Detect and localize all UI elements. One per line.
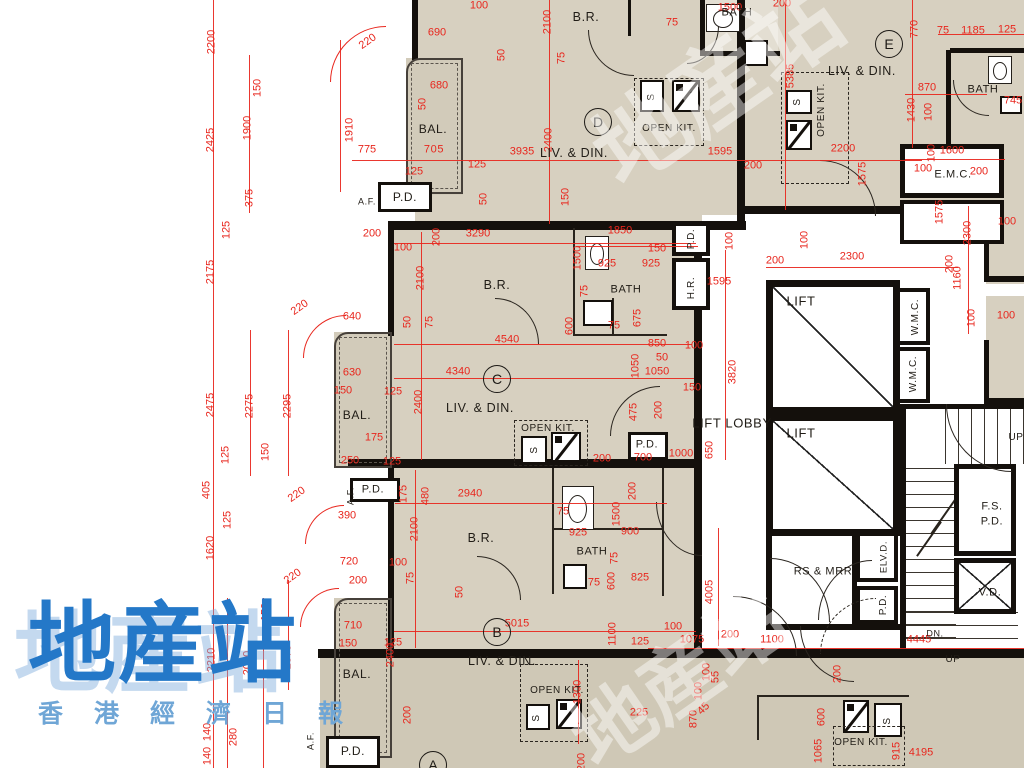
dim-label: 125 bbox=[468, 160, 486, 171]
unit-letter-badge: C bbox=[483, 365, 511, 393]
room-label: W.M.C. bbox=[909, 356, 919, 392]
dimension-line bbox=[395, 503, 667, 504]
unit-letter-badge: D bbox=[584, 108, 612, 136]
room-label: H.R. bbox=[687, 277, 697, 299]
dim-label: 5385 bbox=[786, 64, 797, 88]
unit-letter-badge: E bbox=[875, 30, 903, 58]
dim-label: 690 bbox=[428, 28, 446, 39]
dim-label: 375 bbox=[245, 189, 256, 207]
dim-label: 75 bbox=[608, 321, 620, 332]
dim-label: 2475 bbox=[206, 393, 217, 417]
room-label: B.R. bbox=[468, 532, 495, 545]
dim-label: 200 bbox=[363, 229, 381, 240]
room-area bbox=[392, 468, 698, 658]
dim-label: 75 bbox=[580, 285, 591, 297]
dim-label: 100 bbox=[694, 682, 705, 700]
wall-segment bbox=[984, 276, 1024, 282]
dim-label: 75 bbox=[610, 552, 621, 564]
dim-label: 100 bbox=[914, 164, 932, 175]
dim-label: 75 bbox=[425, 316, 436, 328]
dim-label: 1000 bbox=[669, 449, 693, 460]
dim-label: 50 bbox=[497, 49, 508, 61]
dim-label: 1065 bbox=[814, 739, 825, 763]
room-label: S bbox=[530, 446, 540, 453]
dim-label: 100 bbox=[394, 243, 412, 254]
room-label: LIFT LOBBY bbox=[692, 417, 771, 430]
dim-label: 2200 bbox=[207, 30, 218, 54]
room-label: E.M.C. bbox=[934, 170, 971, 181]
dim-label: 925 bbox=[642, 259, 660, 270]
dim-label: 50 bbox=[479, 193, 490, 205]
dim-label: 1850 bbox=[608, 226, 632, 237]
room-label: A.F. bbox=[347, 487, 356, 505]
dim-label: 150 bbox=[339, 639, 357, 650]
partition-line bbox=[757, 695, 909, 697]
dim-label: 125 bbox=[384, 387, 402, 398]
wall-segment bbox=[984, 340, 989, 400]
dimension-line bbox=[785, 0, 786, 210]
dim-label: 825 bbox=[631, 573, 649, 584]
room-label: LIFT bbox=[786, 427, 815, 440]
service-shaft-box bbox=[900, 200, 1004, 244]
dim-label: 3290 bbox=[466, 229, 490, 240]
dim-label: 150 bbox=[561, 188, 572, 206]
room-label: S bbox=[793, 98, 803, 105]
dim-label: 1100 bbox=[760, 635, 784, 646]
dim-label: 200 bbox=[654, 401, 665, 419]
wall-segment bbox=[694, 468, 702, 654]
dim-label: 870 bbox=[918, 83, 936, 94]
wall-segment bbox=[950, 48, 1024, 53]
dim-label: 1595 bbox=[708, 147, 732, 158]
dim-label: 125 bbox=[998, 25, 1016, 36]
dim-label: 2295 bbox=[283, 394, 294, 418]
room-label: P.D. bbox=[393, 191, 417, 203]
dim-label: 1910 bbox=[345, 118, 356, 142]
dim-label: 680 bbox=[430, 81, 448, 92]
dim-label: 720 bbox=[340, 557, 358, 568]
dimension-line bbox=[352, 160, 922, 161]
dim-label: 75 bbox=[557, 52, 568, 64]
dimension-line bbox=[648, 648, 1024, 649]
dim-label: 1185 bbox=[961, 26, 985, 37]
dim-label: 125 bbox=[221, 446, 232, 464]
room-label: B.R. bbox=[573, 11, 600, 24]
watermark-logo: 地産站 bbox=[28, 600, 298, 688]
dim-label: 75 bbox=[557, 507, 569, 518]
dimension-line bbox=[718, 528, 719, 646]
dim-label: 150 bbox=[683, 383, 701, 394]
dim-label: 1600 bbox=[940, 146, 964, 157]
dim-label: 200 bbox=[773, 0, 791, 10]
dim-label: 100 bbox=[924, 103, 935, 121]
dim-label: 650 bbox=[705, 441, 716, 459]
dim-label: 200 bbox=[577, 753, 588, 768]
watermark-subtitle: 香港經濟日報 bbox=[38, 702, 374, 727]
dim-label: 475 bbox=[629, 403, 640, 421]
dim-label: 125 bbox=[222, 221, 233, 239]
dim-label: 50 bbox=[403, 316, 414, 328]
dim-label: 200 bbox=[970, 167, 988, 178]
dim-label: 125 bbox=[405, 167, 423, 178]
wall-segment bbox=[412, 0, 418, 60]
service-shaft-box bbox=[744, 40, 768, 66]
dim-label: 2100 bbox=[543, 10, 554, 34]
dim-label: 4195 bbox=[909, 748, 933, 759]
dim-label: 125 bbox=[631, 637, 649, 648]
dim-label: 775 bbox=[358, 145, 376, 156]
dim-label: 150 bbox=[648, 244, 666, 255]
dimension-line bbox=[394, 378, 694, 379]
dim-label: 600 bbox=[565, 317, 576, 335]
dim-label: 1050 bbox=[645, 367, 669, 378]
dim-label: 2400 bbox=[414, 390, 425, 414]
room-label: LIV. & DIN. bbox=[446, 402, 514, 415]
dim-label: 600 bbox=[817, 708, 828, 726]
dim-label: 700 bbox=[634, 453, 652, 464]
dim-label: 1500 bbox=[612, 502, 623, 526]
dim-label: 175 bbox=[399, 485, 410, 503]
floor-plan: 2200150242519003751252175247522752295150… bbox=[0, 0, 1024, 768]
dim-label: 915 bbox=[892, 742, 903, 760]
dim-label: 50 bbox=[656, 353, 668, 364]
dim-label: 4340 bbox=[446, 367, 470, 378]
dim-label: 2100 bbox=[416, 266, 427, 290]
dimension-arc bbox=[303, 315, 346, 358]
dim-label: 390 bbox=[338, 511, 356, 522]
dim-label: 200 bbox=[721, 630, 739, 641]
partition-line bbox=[573, 334, 667, 336]
dim-label: 220 bbox=[282, 567, 303, 587]
dimension-line bbox=[576, 246, 698, 247]
dim-label: 675 bbox=[633, 309, 644, 327]
dim-label: 55 bbox=[711, 671, 722, 683]
dim-label: 100 bbox=[685, 341, 703, 352]
dim-label: 225 bbox=[630, 708, 648, 719]
dim-label: 125 bbox=[223, 511, 234, 529]
dim-label: 600 bbox=[607, 572, 618, 590]
wall-segment bbox=[700, 51, 780, 56]
dim-label: 3820 bbox=[728, 360, 739, 384]
wall-segment bbox=[318, 649, 1024, 658]
dim-label: 75 bbox=[666, 18, 678, 29]
dimension-arc bbox=[300, 588, 339, 627]
dim-label: 100 bbox=[725, 232, 736, 250]
dim-label: 1575 bbox=[935, 200, 946, 224]
dim-label: 200 bbox=[628, 482, 639, 500]
room-label: ELV.D. bbox=[879, 541, 889, 573]
dim-label: 200 bbox=[432, 228, 443, 246]
dim-label: 2200 bbox=[831, 144, 855, 155]
wall-segment bbox=[900, 404, 906, 656]
dim-label: 900 bbox=[621, 527, 639, 538]
dim-label: 50 bbox=[418, 98, 429, 110]
dim-label: 100 bbox=[927, 144, 938, 162]
dim-label: 200 bbox=[593, 454, 611, 465]
room-label: OPEN KIT. bbox=[530, 686, 584, 696]
dim-label: 925 bbox=[569, 528, 587, 539]
dim-label: 2940 bbox=[458, 489, 482, 500]
dim-label: 1500 bbox=[573, 246, 584, 270]
service-shaft-box bbox=[563, 564, 587, 589]
room-label: OPEN KIT. bbox=[642, 124, 696, 134]
room-label: S bbox=[532, 714, 542, 721]
dim-label: 2100 bbox=[410, 517, 421, 541]
room-label: UP bbox=[945, 655, 960, 665]
dim-label: 150 bbox=[253, 79, 264, 97]
dim-label: 100 bbox=[664, 622, 682, 633]
partition-line bbox=[757, 695, 759, 740]
dim-label: 710 bbox=[344, 621, 362, 632]
dim-label: 200 bbox=[744, 161, 762, 172]
dim-label: 140 bbox=[203, 747, 214, 765]
dim-label: 770 bbox=[910, 20, 921, 38]
room-label: BATH bbox=[968, 85, 999, 96]
dim-label: 925 bbox=[598, 259, 616, 270]
room-label: OPEN KIT. bbox=[521, 424, 575, 434]
dim-label: 1160 bbox=[953, 266, 964, 290]
dim-label: 1620 bbox=[206, 536, 217, 560]
dim-label: 2300 bbox=[963, 221, 974, 245]
room-label: A.F. bbox=[307, 732, 316, 750]
room-label: P.D. bbox=[636, 440, 658, 451]
dim-label: 200 bbox=[349, 576, 367, 587]
dim-label: 2300 bbox=[840, 252, 864, 263]
dim-label: 1430 bbox=[907, 98, 918, 122]
dim-label: 640 bbox=[343, 312, 361, 323]
room-label: S bbox=[883, 717, 893, 724]
toilet-icon bbox=[988, 56, 1012, 84]
dim-label: 1075 bbox=[680, 635, 704, 646]
dim-label: 630 bbox=[343, 368, 361, 379]
dim-label: 870 bbox=[689, 710, 700, 728]
dim-label: 1100 bbox=[608, 622, 619, 646]
dim-label: 220 bbox=[286, 485, 307, 505]
dim-label: 150 bbox=[334, 386, 352, 397]
room-label: OPEN KIT. bbox=[834, 738, 888, 748]
room-label: P.D. bbox=[362, 485, 384, 496]
dim-label: 200 bbox=[833, 665, 844, 683]
wall-segment bbox=[946, 50, 951, 148]
dim-label: 200 bbox=[403, 706, 414, 724]
dim-label: 220 bbox=[289, 298, 310, 318]
room-label: DN. bbox=[926, 630, 943, 639]
dim-label: 1050 bbox=[631, 354, 642, 378]
room-label: 705 bbox=[424, 145, 444, 156]
room-label: BATH bbox=[722, 8, 753, 19]
dim-label: 75 bbox=[588, 578, 600, 589]
dim-label: 100 bbox=[800, 231, 811, 249]
room-label: LIV. & DIN. bbox=[540, 147, 608, 160]
dim-label: 100 bbox=[998, 217, 1016, 228]
dim-label: 100 bbox=[470, 1, 488, 12]
dim-label: 1575 bbox=[858, 162, 869, 186]
dim-label: 2175 bbox=[206, 260, 217, 284]
dim-label: 2425 bbox=[206, 128, 217, 152]
partition-line bbox=[552, 468, 554, 594]
dim-label: 75 bbox=[406, 572, 417, 584]
room-label: P.D. bbox=[687, 229, 697, 250]
dim-label: 745 bbox=[1004, 96, 1022, 107]
dimension-line bbox=[394, 631, 696, 632]
room-label: V.D. bbox=[979, 588, 1002, 599]
room-label: P.D. bbox=[341, 745, 365, 757]
dim-label: 150 bbox=[261, 443, 272, 461]
open-kitchen-zone bbox=[634, 78, 704, 146]
room-label: W.M.C. bbox=[911, 299, 921, 335]
room-label: RS & MRR bbox=[794, 567, 853, 578]
room-label: P.D. bbox=[981, 517, 1003, 528]
room-label: BATH bbox=[577, 547, 608, 558]
dim-label: 100 bbox=[967, 309, 978, 327]
room-label: BATH bbox=[611, 285, 642, 296]
dim-label: 3935 bbox=[510, 147, 534, 158]
dimension-line bbox=[905, 159, 1005, 160]
dimension-line bbox=[415, 470, 416, 648]
room-label: S bbox=[647, 93, 657, 100]
room-label: BAL. bbox=[343, 668, 371, 680]
dim-label: 100 bbox=[389, 558, 407, 569]
dim-label: 2275 bbox=[245, 394, 256, 418]
room-label: LIFT bbox=[786, 295, 815, 308]
dim-label: 125 bbox=[383, 457, 401, 468]
room-label: LIV. & DIN. bbox=[828, 65, 896, 78]
dim-label: 4540 bbox=[495, 335, 519, 346]
dim-label: 175 bbox=[365, 433, 383, 444]
room-label: F.S. bbox=[981, 502, 1002, 513]
dim-label: 50 bbox=[455, 586, 466, 598]
unit-letter-badge: B bbox=[483, 618, 511, 646]
room-label: OPEN KIT. bbox=[817, 83, 827, 137]
dim-label: 405 bbox=[202, 481, 213, 499]
room-label: UP bbox=[1008, 433, 1023, 443]
dim-label: 1595 bbox=[707, 277, 731, 288]
room-label: BAL. bbox=[419, 123, 447, 135]
room-label: BAL. bbox=[343, 409, 371, 421]
dim-label: 2400 bbox=[386, 643, 397, 667]
room-label: P.D. bbox=[879, 595, 889, 616]
dim-label: 280 bbox=[229, 728, 240, 746]
dim-label: 4005 bbox=[705, 580, 716, 604]
room-label: A.F. bbox=[358, 198, 376, 207]
dim-label: 75 bbox=[937, 26, 949, 37]
room-label: LIV. & DIN. bbox=[468, 655, 536, 668]
dim-label: 1900 bbox=[243, 116, 254, 140]
dim-label: 850 bbox=[648, 339, 666, 350]
room-label: B.R. bbox=[484, 279, 511, 292]
dimension-line bbox=[766, 267, 958, 268]
dimension-arc bbox=[330, 26, 386, 82]
dim-label: 200 bbox=[766, 256, 784, 267]
dim-label: 100 bbox=[997, 311, 1015, 322]
wall-segment bbox=[737, 0, 745, 226]
dim-label: 250 bbox=[341, 456, 359, 467]
dim-label: 480 bbox=[421, 487, 432, 505]
